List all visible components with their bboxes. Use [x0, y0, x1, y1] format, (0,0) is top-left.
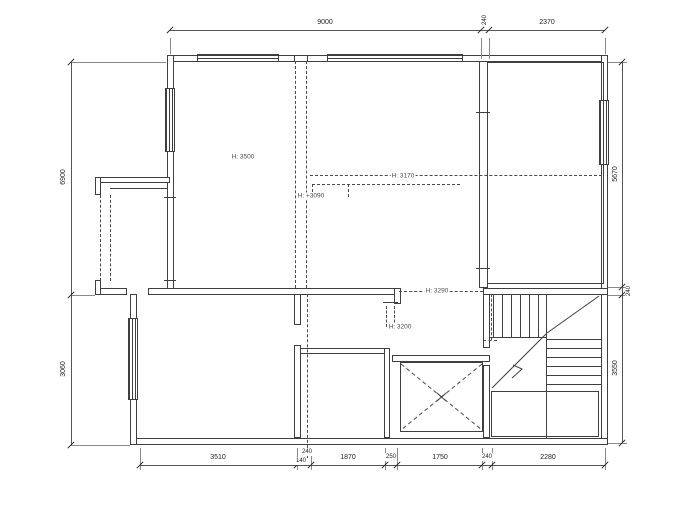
- dim-bottom-240b: 240: [481, 453, 493, 461]
- dim-line-top: [170, 30, 605, 31]
- ext-line: [140, 448, 141, 470]
- wall-mbroom-right: [384, 348, 390, 438]
- ext-line: [608, 62, 627, 63]
- stair-dashed-h: [483, 340, 497, 341]
- ext-line: [489, 38, 490, 59]
- wall-join-mark-2: [164, 280, 176, 281]
- dim-bottom-3510: 3510: [209, 454, 227, 462]
- wall-bottom: [130, 438, 608, 445]
- top-wall-junction-2: [307, 55, 308, 62]
- ext-line: [605, 448, 606, 470]
- dim-bottom-240a: 240: [301, 448, 313, 456]
- dim-left-3060: 3060: [60, 361, 68, 377]
- label-level-3200: H: 3200: [388, 324, 413, 331]
- dim-bottom-140: 140: [295, 457, 307, 465]
- dim-bottom-1870: 1870: [339, 454, 357, 462]
- ext-line: [71, 445, 130, 446]
- elevator-shaft: [400, 362, 483, 432]
- upper-partition-dashed-1: [295, 61, 296, 288]
- label-room-height-3500: H: 3500: [231, 154, 256, 161]
- protrusion-dashed-left-1: [100, 195, 101, 281]
- dim-top-240: 240: [481, 15, 489, 25]
- stair-treads-right: [547, 339, 602, 392]
- stair-treads-upper: [493, 294, 546, 337]
- level-line-secondary: [312, 184, 460, 185]
- level-box-right: [348, 184, 349, 197]
- ext-line: [481, 38, 482, 59]
- upper-right-room-outline: [487, 62, 604, 284]
- wall-blroom-right-b: [294, 345, 301, 438]
- wall-stair-left-b: [483, 365, 490, 438]
- dim-left-6900: 6900: [60, 169, 68, 185]
- dim-line-right: [622, 62, 623, 443]
- dim-top-9000: 9000: [316, 19, 334, 27]
- protrusion-dashed-left-2: [110, 195, 111, 281]
- label-level-3290: H: 3290: [425, 288, 450, 295]
- dim-line-bottom: [140, 465, 605, 466]
- ext-line: [605, 38, 606, 54]
- window-top-2: [327, 54, 463, 62]
- wall-elevator-top: [392, 355, 490, 362]
- ext-line: [608, 443, 627, 444]
- ext-line: [397, 448, 398, 470]
- wall-join-mark-1: [164, 197, 176, 198]
- stair-dashed-v: [491, 294, 492, 340]
- window-left-lower: [128, 318, 138, 400]
- level-line-3170: [310, 175, 602, 176]
- wall-protrusion-top: [95, 177, 170, 183]
- window-top-1: [197, 54, 279, 62]
- wall-mbroom-top: [300, 348, 390, 354]
- lower-partition-dashed: [307, 294, 308, 458]
- ext-line: [71, 295, 95, 296]
- label-level-3090: H: +3090: [297, 193, 326, 200]
- top-wall-junction-1: [294, 55, 295, 62]
- wall-mid-b: [148, 288, 397, 295]
- upper-partition-dashed-2: [306, 61, 307, 288]
- protrusion-inner-line: [110, 188, 167, 189]
- wall-protrusion-stub-bottom: [95, 280, 101, 295]
- wall-blroom-right-a: [294, 294, 301, 325]
- stair-landing: [491, 391, 599, 437]
- dim-top-2370: 2370: [538, 19, 556, 27]
- floor-plan-canvas: H: 3500 H: +3090 H: 3170 H: 3290 H: 3200…: [0, 0, 700, 525]
- window-left-upper: [165, 88, 175, 152]
- ext-line: [170, 38, 171, 54]
- dim-right-5670: 5670: [612, 166, 620, 182]
- ext-line: [71, 62, 166, 63]
- door-head-line: [383, 302, 398, 303]
- dim-right-240: 240: [625, 286, 633, 296]
- window-right-upper: [599, 100, 609, 165]
- dim-bottom-1750: 1750: [431, 454, 449, 462]
- dim-bottom-250: 250: [385, 453, 397, 461]
- dim-right-3550: 3550: [612, 360, 620, 376]
- wall-protrusion-stub-top: [95, 177, 101, 195]
- dim-tick: [601, 26, 608, 33]
- dim-bottom-2280: 2280: [539, 454, 557, 462]
- stair-flight-base: [489, 337, 546, 338]
- dim-line-left: [71, 62, 72, 445]
- label-level-3170: H: 3170: [391, 173, 416, 180]
